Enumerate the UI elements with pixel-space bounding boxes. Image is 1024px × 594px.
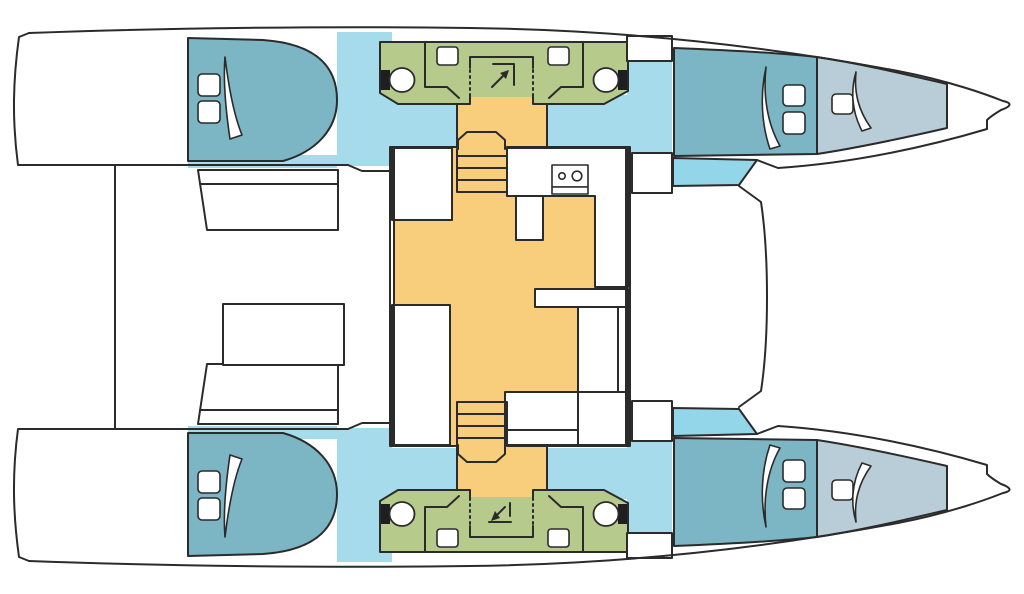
stove-front: [552, 187, 588, 194]
toilet-bowl: [594, 68, 619, 92]
companionway-corridor: [457, 97, 547, 151]
cockpit-bench: [198, 170, 338, 230]
sink: [548, 47, 569, 65]
aft-cabin-bed: [188, 38, 337, 161]
salon-cabinet: [392, 148, 452, 220]
galley-island: [516, 196, 543, 240]
salon: [390, 147, 630, 446]
dinette-sofa: [578, 307, 618, 392]
pillow: [783, 112, 805, 134]
deck-locker: [627, 36, 672, 61]
floor-plan-canvas: [0, 0, 1024, 594]
sink: [437, 47, 458, 65]
salon-sofa: [392, 305, 450, 445]
fwd-cabin-floor: [673, 158, 757, 186]
forepeak-hatch: [832, 94, 853, 114]
foredeck-front-edge: [739, 186, 767, 407]
toilet-bowl: [390, 68, 415, 92]
deck-locker: [632, 153, 672, 193]
pillow: [198, 101, 220, 123]
pillow: [783, 85, 805, 106]
dinette-sofa-back: [535, 289, 628, 307]
pillow: [198, 74, 220, 96]
cockpit-table: [223, 304, 344, 365]
fwd-cabin-entry-floor: [627, 50, 672, 153]
catamaran-floor-plan: [0, 0, 1024, 594]
dinette-seat: [505, 392, 628, 445]
